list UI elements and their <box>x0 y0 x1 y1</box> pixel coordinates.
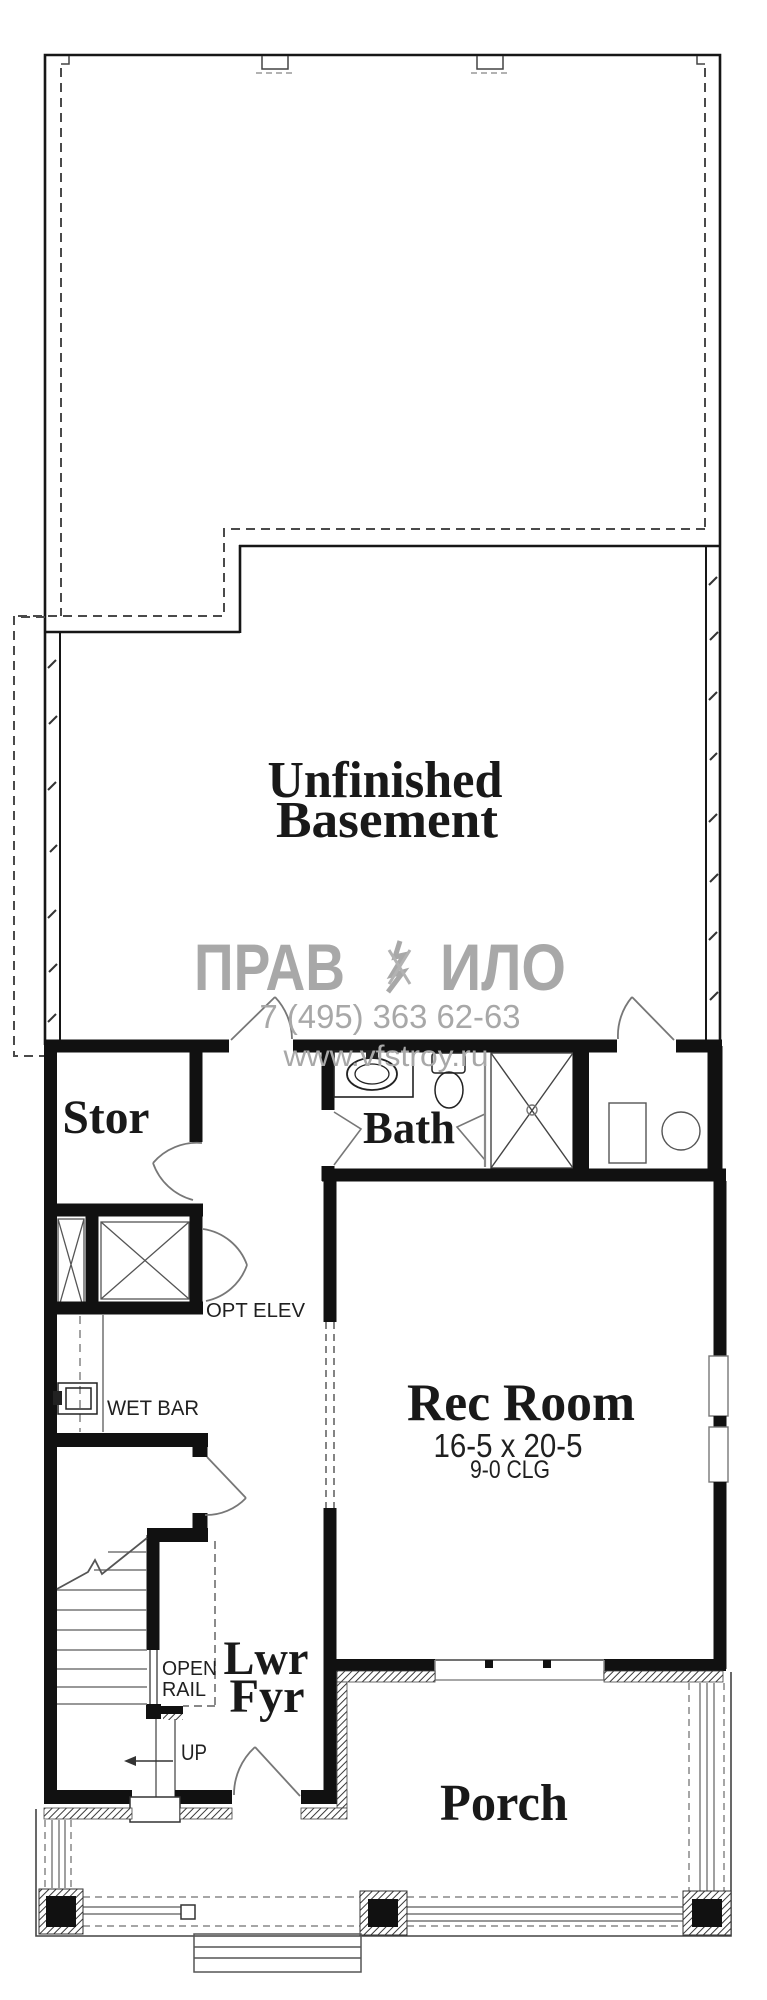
svg-text:Rec Room: Rec Room <box>407 1374 635 1432</box>
svg-text:ПРАВ: ПРАВ <box>194 930 345 1004</box>
svg-text:UP: UP <box>181 1740 207 1765</box>
svg-text:Stor: Stor <box>63 1091 150 1144</box>
svg-text:RAIL: RAIL <box>162 1679 206 1701</box>
svg-text:OPEN: OPEN <box>162 1658 217 1680</box>
svg-text:OPT ELEV: OPT ELEV <box>206 1300 306 1322</box>
svg-text:Fyr: Fyr <box>230 1670 305 1723</box>
svg-text:Porch: Porch <box>440 1775 568 1832</box>
svg-text:9-0 CLG: 9-0 CLG <box>470 1456 550 1484</box>
svg-text:7 (495) 363 62-63: 7 (495) 363 62-63 <box>260 998 521 1035</box>
svg-text:WET BAR: WET BAR <box>107 1397 199 1420</box>
svg-text:ИЛО: ИЛО <box>440 930 566 1004</box>
svg-text:www.vfstroy.ru: www.vfstroy.ru <box>282 1040 488 1073</box>
svg-text:Basement: Basement <box>276 792 499 849</box>
svg-text:Bath: Bath <box>363 1102 455 1153</box>
